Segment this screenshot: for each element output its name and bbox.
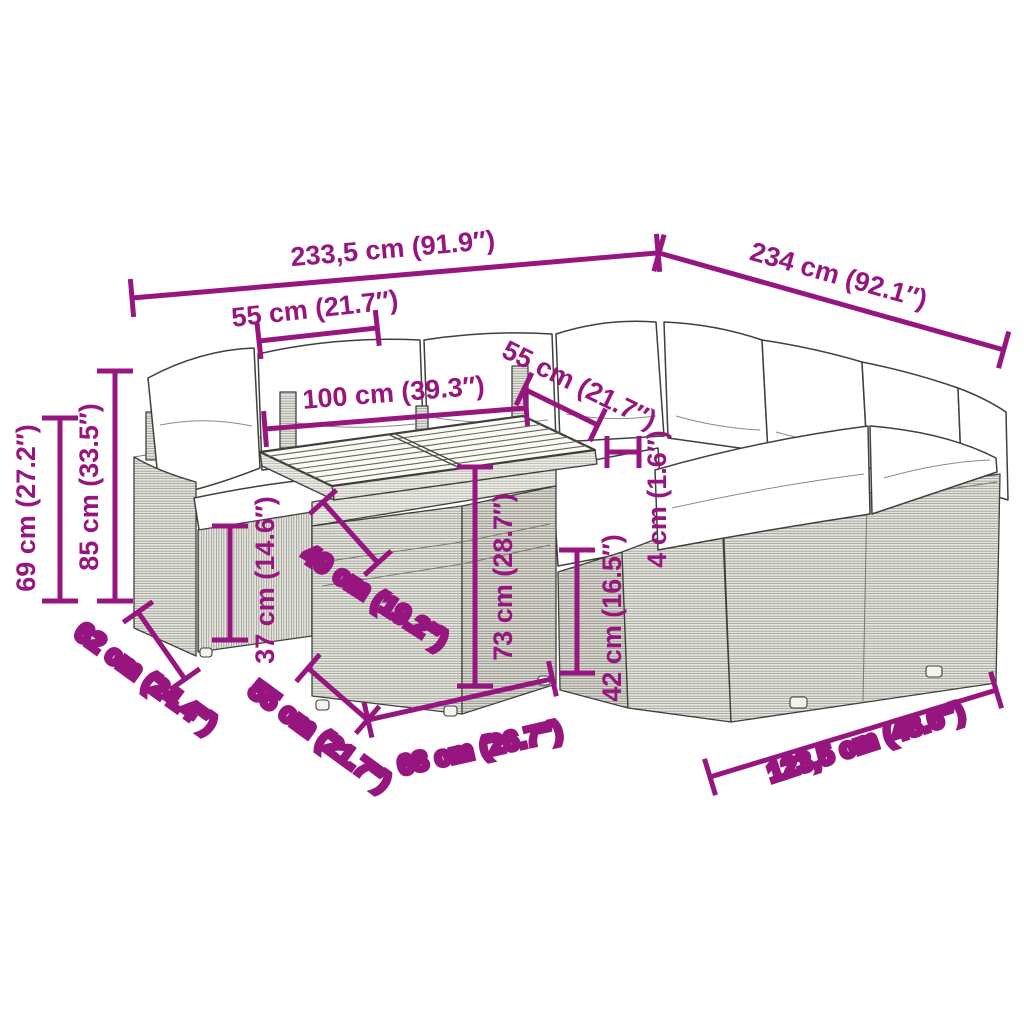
dimension-tick bbox=[130, 279, 133, 317]
frame-post bbox=[280, 392, 296, 448]
furniture-foot bbox=[316, 700, 329, 710]
dim-label-armrest-height: 69 cm (27.2″) bbox=[11, 424, 41, 592]
furniture-foot bbox=[200, 648, 212, 657]
dim-label-table-height: 73 cm (28.7″) bbox=[488, 493, 518, 661]
dimension-diagram-page: 233,5 cm (91.9″) 234 cm (92.1″) 55 cm (2… bbox=[0, 0, 1024, 1024]
dimension-line bbox=[259, 328, 377, 341]
furniture-foot bbox=[790, 697, 807, 708]
dim-label-overall-back: 233,5 cm (91.9″) bbox=[289, 225, 496, 272]
furniture-foot bbox=[926, 666, 942, 677]
armchair-arm-panel bbox=[134, 457, 196, 656]
dim-label-cushion-thickness: 4 cm (1.6″) bbox=[642, 430, 672, 568]
dim-label-seat-height-right: 42 cm (16.5″) bbox=[597, 534, 627, 702]
dim-label-back-module: 55 cm (21.7″) bbox=[230, 285, 400, 333]
furniture-foot bbox=[444, 706, 457, 716]
dim-label-seat-height: 37 cm (14.6″) bbox=[250, 496, 280, 664]
back-cushion bbox=[664, 322, 768, 452]
dim-label-table-front: 68 cm (26.7″) bbox=[395, 715, 565, 781]
dimension-tick bbox=[525, 390, 528, 426]
dim-label-total-height: 85 cm (33.5″) bbox=[74, 403, 104, 571]
product-dimension-diagram: 233,5 cm (91.9″) 234 cm (92.1″) 55 cm (2… bbox=[0, 0, 1024, 1024]
dimension-tick bbox=[264, 411, 267, 447]
dim-line-armrest-height: 69 cm (27.2″) bbox=[11, 418, 78, 601]
dim-line-total-height: 85 cm (33.5″) bbox=[74, 371, 133, 601]
